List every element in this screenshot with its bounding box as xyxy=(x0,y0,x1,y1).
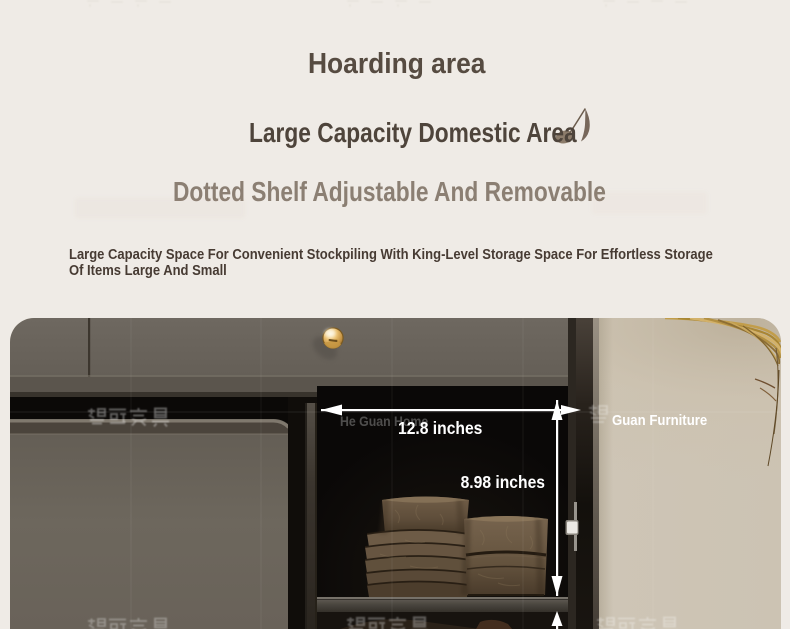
svg-text:8.98 inches: 8.98 inches xyxy=(461,472,545,492)
svg-text:Guan Furniture: Guan Furniture xyxy=(612,411,707,428)
svg-text:He Guan Home: He Guan Home xyxy=(340,413,428,429)
